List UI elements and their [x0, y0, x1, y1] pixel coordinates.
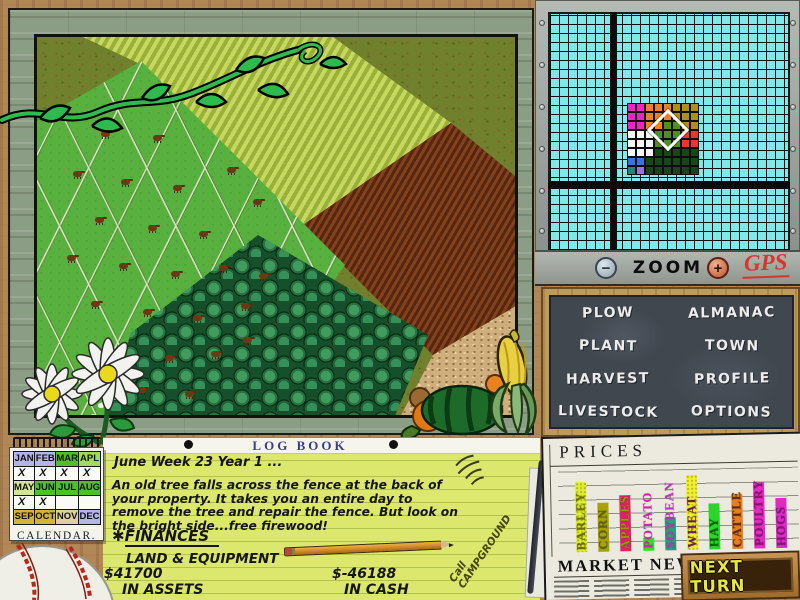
calendar-month-jul: JUL — [56, 481, 78, 495]
price-bar-label-apples: APPLES — [617, 495, 633, 549]
minimap-cell — [654, 103, 663, 112]
calendar-month-jun: JUN — [35, 481, 55, 495]
newspaper-fold-line — [549, 445, 552, 557]
next-turn-inner: NEXT TURN — [688, 558, 794, 595]
land-equipment-label: LAND & EQUIPMENT — [126, 551, 278, 567]
minimap-cell — [690, 121, 699, 130]
zoom-label: ZOOM — [630, 258, 706, 278]
rivet-icon — [790, 188, 796, 194]
rivet-icon — [790, 104, 796, 110]
calendar-mark-cell: X — [35, 496, 55, 509]
cow-sprite — [165, 355, 174, 361]
minimap-cell — [627, 130, 636, 139]
minimap-cell — [672, 148, 681, 157]
calendar-mark-cell — [79, 496, 100, 509]
menu-button-livestock[interactable]: LIVESTOCK — [558, 403, 659, 421]
news-column — [634, 578, 669, 600]
rivet-icon — [790, 146, 796, 152]
logbook-title: LOG BOOK — [160, 438, 440, 454]
minimap-cell — [654, 157, 663, 166]
rivet-icon — [539, 188, 545, 194]
minimap-cell — [645, 148, 654, 157]
prices-title: PRICES — [559, 441, 647, 463]
minimap-cell — [645, 139, 654, 148]
cow-sprite — [219, 265, 228, 271]
cow-sprite — [119, 263, 128, 269]
minimap-cell — [690, 157, 699, 166]
cow-sprite — [227, 167, 236, 173]
menu-column-right: ALMANACTOWNPROFILEOPTIONS — [670, 296, 794, 428]
calendar-mark-cell: X — [14, 496, 34, 509]
minimap-cell — [690, 130, 699, 139]
minimap-cell — [681, 157, 690, 166]
cow-sprite — [193, 315, 202, 321]
next-turn-button[interactable]: NEXT TURN — [680, 550, 800, 600]
minimap-cell — [681, 148, 690, 157]
cow-sprite — [243, 337, 252, 343]
news-column — [594, 579, 629, 600]
assets-label: IN ASSETS — [122, 582, 204, 598]
rivet-icon — [539, 20, 545, 26]
logbook-hole — [184, 440, 193, 449]
minimap-cell — [636, 103, 645, 112]
rivet-icon — [790, 20, 796, 26]
menu-button-options[interactable]: OPTIONS — [691, 403, 772, 420]
menu-button-plow[interactable]: PLOW — [582, 304, 634, 321]
minimap-cell — [681, 112, 690, 121]
cow-sprite — [185, 391, 194, 397]
minimap-cell — [690, 103, 699, 112]
minimap-cell — [627, 121, 636, 130]
calendar-mark-cell: X — [79, 467, 100, 480]
vine-decoration — [0, 6, 345, 146]
cow-sprite — [91, 301, 100, 307]
minimap-cell — [636, 157, 645, 166]
calendar-month-nov: NOV — [56, 510, 78, 524]
minimap-road-vertical — [610, 12, 617, 252]
cow-sprite — [173, 185, 182, 191]
calendar-mark-cell: X — [56, 467, 78, 480]
minimap-cell — [627, 103, 636, 112]
rivet-icon — [539, 146, 545, 152]
minimap-cell — [672, 103, 681, 112]
zoom-in-button[interactable]: + — [707, 257, 729, 279]
price-bar-label-soybean: SOYBEAN — [662, 481, 678, 549]
menu-button-harvest[interactable]: HARVEST — [566, 370, 650, 387]
rivet-icon — [790, 228, 796, 234]
calendar-month-aug: AUG — [79, 481, 100, 495]
calendar-month-jan: JAN — [14, 452, 34, 466]
minimap-cell — [681, 166, 690, 175]
minimap-cell — [663, 157, 672, 166]
minimap-cell — [690, 166, 699, 175]
price-bar-label-potato: POTATO — [640, 492, 656, 549]
menu-button-almanac[interactable]: ALMANAC — [688, 304, 776, 322]
cow-sprite — [67, 255, 76, 261]
calendar-month-dec: DEC — [79, 510, 100, 524]
calendar-month-feb: FEB — [35, 452, 55, 466]
minimap-cell — [636, 112, 645, 121]
minimap-cell — [645, 103, 654, 112]
produce-decoration — [398, 334, 538, 436]
minimap-cell — [645, 112, 654, 121]
rivet-icon — [539, 104, 545, 110]
price-bar-label-corn: CORN — [596, 509, 612, 550]
calendar-month-mar: MAR — [56, 452, 78, 466]
minimap-cell — [654, 148, 663, 157]
price-bar-label-hogs: HOGS — [773, 506, 789, 546]
menu-button-town[interactable]: TOWN — [705, 337, 760, 354]
minimap-cell — [681, 103, 690, 112]
minimap-cell — [690, 148, 699, 157]
minimap-cell — [690, 112, 699, 121]
cow-sprite — [241, 303, 250, 309]
minimap-cell — [654, 166, 663, 175]
calendar-grid: JANFEBMARAPLXXXXMAYJUNJULAUGXXSEPOCTNOVD… — [13, 451, 101, 525]
finances-word: FINANCES — [125, 527, 220, 547]
minimap-cell — [627, 112, 636, 121]
calendar-mark-cell: X — [35, 467, 55, 480]
rivet-icon — [790, 62, 796, 68]
logbook-entry-text: An old tree falls across the fence at th… — [112, 479, 464, 533]
minimap-cell — [690, 139, 699, 148]
menu-button-plant[interactable]: PLANT — [578, 337, 637, 354]
calendar-month-may: MAY — [14, 481, 34, 495]
baseball-decoration — [0, 543, 115, 600]
menu-column-left: PLOWPLANTHARVESTLIVESTOCK — [552, 296, 664, 428]
price-bar-label-cattle: CATTLE — [729, 490, 745, 547]
minimap-cell — [672, 166, 681, 175]
minimap-cell — [645, 166, 654, 175]
cow-sprite — [73, 171, 82, 177]
cow-sprite — [259, 273, 268, 279]
calendar-mark-cell: X — [14, 467, 34, 480]
price-bar-label-hay: HAY — [707, 518, 723, 548]
minimap-cell — [627, 157, 636, 166]
price-bar-label-poultry: POULTRY — [751, 480, 767, 547]
minimap-cell — [627, 148, 636, 157]
price-bar-label-barley: BARLEY — [573, 492, 589, 550]
cow-sprite — [148, 225, 157, 231]
minimap-cell — [663, 166, 672, 175]
minimap-cell — [627, 166, 636, 175]
cow-sprite — [171, 271, 180, 277]
news-column — [554, 580, 589, 600]
logbook-date-line: June Week 23 Year 1 ... — [114, 455, 282, 470]
price-bar-label-wheat: WHEAT — [684, 496, 700, 548]
cash-value: $-46188 — [332, 566, 396, 582]
cow-sprite — [143, 309, 152, 315]
cash-label: IN CASH — [344, 582, 409, 598]
logbook-hole — [389, 440, 398, 449]
menu-button-profile[interactable]: PROFILE — [694, 370, 771, 387]
gps-button[interactable]: GPS — [742, 249, 790, 279]
calendar-caption: CALENDAR. — [9, 530, 104, 542]
finances-heading: ✱FINANCES — [112, 527, 219, 545]
minimap-cell — [636, 166, 645, 175]
rivet-icon — [539, 62, 545, 68]
next-turn-label: NEXT TURN — [690, 556, 792, 597]
cow-sprite — [95, 217, 104, 223]
cow-sprite — [211, 351, 220, 357]
minimap-cell — [681, 139, 690, 148]
minimap-cell — [636, 121, 645, 130]
minimap-cell — [645, 157, 654, 166]
farm-game-screen: − ZOOM + GPS PLOWPLANTHARVESTLIVESTOCK A… — [0, 0, 800, 600]
rivet-icon — [539, 228, 545, 234]
calendar-mark-cell — [56, 496, 78, 509]
minimap-cell — [636, 148, 645, 157]
minimap-cell — [672, 157, 681, 166]
margin-scribble — [452, 446, 500, 490]
calendar-month-oct: OCT — [35, 510, 55, 524]
calendar-month-sep: SEP — [14, 510, 34, 524]
cow-sprite — [199, 231, 208, 237]
calendar-month-apl: APL — [79, 452, 100, 466]
daisy-flowers — [6, 332, 166, 450]
cow-sprite — [253, 199, 262, 205]
cow-sprite — [121, 179, 130, 185]
minimap-cell — [627, 139, 636, 148]
minimap-road-horizontal — [548, 181, 790, 189]
minimap-cell — [636, 130, 645, 139]
minimap-cell — [636, 139, 645, 148]
zoom-out-button[interactable]: − — [595, 257, 617, 279]
